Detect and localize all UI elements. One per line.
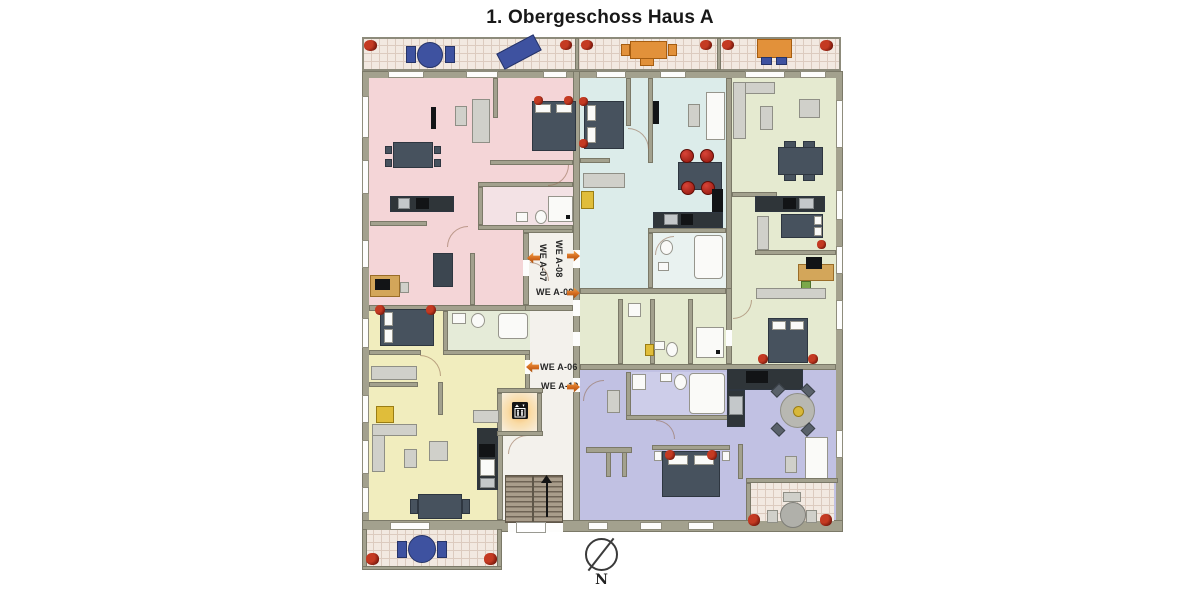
entrance-landing bbox=[516, 522, 546, 533]
stove bbox=[681, 214, 693, 225]
balcony-table bbox=[630, 41, 667, 59]
window bbox=[836, 430, 843, 458]
plant bbox=[579, 97, 588, 106]
wall bbox=[755, 250, 836, 255]
tv bbox=[431, 107, 436, 129]
dining-table bbox=[778, 147, 823, 175]
sink bbox=[516, 212, 528, 222]
balcony-wall bbox=[362, 529, 367, 570]
toilet bbox=[674, 374, 687, 390]
window bbox=[543, 71, 567, 78]
pillow bbox=[814, 216, 822, 225]
window bbox=[362, 440, 369, 474]
door-gap bbox=[573, 332, 580, 346]
staircase-direction-line bbox=[546, 481, 548, 517]
window bbox=[362, 160, 369, 194]
fridge bbox=[480, 459, 495, 476]
sink bbox=[452, 313, 466, 324]
window bbox=[836, 300, 843, 330]
crib bbox=[581, 191, 594, 209]
flower-pot bbox=[820, 514, 832, 526]
elevator-icon bbox=[512, 402, 528, 419]
wall bbox=[470, 253, 475, 305]
computer-monitor bbox=[375, 279, 390, 290]
wall bbox=[606, 452, 611, 477]
stove bbox=[783, 198, 796, 209]
label-we-a-06: WE A-06 bbox=[540, 362, 578, 372]
window bbox=[800, 71, 826, 78]
pillow bbox=[587, 105, 596, 121]
nightstand bbox=[722, 451, 730, 461]
stove bbox=[479, 444, 495, 457]
flower-pot bbox=[581, 40, 593, 50]
chair bbox=[680, 149, 694, 163]
pillow bbox=[556, 104, 572, 113]
sofa bbox=[805, 437, 828, 480]
window bbox=[362, 96, 369, 138]
washing-machine bbox=[632, 374, 646, 390]
toilet bbox=[471, 313, 485, 328]
wall bbox=[493, 78, 498, 118]
flower-pot bbox=[364, 40, 377, 51]
washing-machine bbox=[628, 303, 641, 317]
chair bbox=[434, 146, 441, 154]
window bbox=[388, 71, 424, 78]
pillow bbox=[587, 127, 596, 143]
chair bbox=[784, 141, 796, 148]
window bbox=[660, 71, 686, 78]
staircase-divider bbox=[532, 475, 534, 523]
label-we-a-07: WE A-07 bbox=[538, 244, 548, 282]
wall bbox=[626, 415, 731, 420]
wall bbox=[478, 225, 573, 230]
window bbox=[688, 522, 714, 530]
stove bbox=[416, 198, 429, 209]
balcony-wall bbox=[497, 529, 502, 570]
window bbox=[362, 487, 369, 513]
balcony-chair bbox=[445, 46, 455, 63]
plant bbox=[426, 305, 436, 315]
wall bbox=[626, 78, 631, 126]
label-we-a-08: WE A-08 bbox=[554, 240, 564, 278]
chair bbox=[700, 149, 714, 163]
chair bbox=[385, 159, 392, 167]
balcony-chair bbox=[640, 58, 654, 66]
tv bbox=[653, 101, 659, 124]
plant bbox=[534, 96, 543, 105]
plant bbox=[579, 139, 588, 148]
wall bbox=[497, 431, 543, 436]
balcony-chair bbox=[437, 541, 447, 558]
chair bbox=[385, 146, 392, 154]
door-gap bbox=[726, 330, 732, 346]
door-gap bbox=[573, 300, 580, 316]
kitchen-sink bbox=[398, 198, 410, 209]
sink bbox=[660, 373, 672, 382]
corner-sofa bbox=[733, 82, 746, 139]
pillow bbox=[384, 312, 393, 326]
balcony-round-table bbox=[780, 502, 806, 528]
page-title: 1. Obergeschoss Haus A bbox=[0, 7, 1200, 29]
sofa bbox=[472, 99, 490, 143]
wall bbox=[438, 382, 443, 415]
coffee-table bbox=[404, 449, 417, 468]
wall bbox=[738, 444, 743, 479]
bench bbox=[688, 104, 700, 127]
coffee-table bbox=[760, 106, 773, 130]
wall bbox=[369, 350, 421, 355]
bathtub bbox=[689, 373, 725, 414]
bathtub bbox=[498, 313, 528, 339]
floor-plan-page: 1. Obergeschoss Haus A bbox=[0, 0, 1200, 600]
kitchen-sink bbox=[799, 198, 814, 209]
balcony-chair bbox=[406, 46, 416, 63]
toilet bbox=[535, 210, 547, 224]
balcony-chair bbox=[621, 44, 630, 56]
table-centerpiece bbox=[793, 406, 804, 417]
pillow bbox=[535, 104, 551, 113]
toilet bbox=[660, 240, 673, 255]
wall bbox=[369, 382, 418, 387]
armchair bbox=[799, 99, 820, 118]
flower-pot bbox=[722, 40, 734, 50]
balcony-round-table bbox=[417, 42, 443, 68]
wall bbox=[622, 452, 627, 477]
toilet bbox=[666, 342, 678, 357]
chair bbox=[784, 174, 796, 181]
balcony-chair bbox=[761, 57, 772, 65]
kitchen-appliance bbox=[712, 189, 723, 212]
staircase bbox=[505, 475, 563, 523]
dining-table bbox=[418, 494, 462, 519]
balcony-wall bbox=[746, 478, 838, 483]
wall bbox=[580, 288, 726, 294]
flower-pot bbox=[560, 40, 572, 50]
window bbox=[362, 240, 369, 268]
flower-pot bbox=[366, 553, 379, 565]
chair bbox=[681, 181, 695, 195]
plant bbox=[817, 240, 826, 249]
stove bbox=[746, 371, 768, 383]
wardrobe bbox=[756, 288, 826, 299]
pillow bbox=[790, 321, 804, 330]
flower-pot bbox=[484, 553, 497, 565]
balcony-table bbox=[757, 39, 792, 58]
armchair bbox=[429, 441, 448, 461]
window bbox=[836, 246, 843, 274]
sink bbox=[658, 262, 669, 271]
towel-rack bbox=[645, 344, 654, 356]
plant bbox=[758, 354, 768, 364]
balcony-chair bbox=[783, 492, 801, 502]
window bbox=[362, 395, 369, 423]
plant bbox=[564, 96, 573, 105]
balcony-divider bbox=[575, 38, 579, 70]
balcony-chair bbox=[397, 541, 407, 558]
window bbox=[745, 71, 785, 78]
wall bbox=[726, 288, 732, 364]
chair bbox=[410, 499, 418, 514]
kitchen-sink bbox=[664, 214, 678, 225]
door-gap bbox=[523, 260, 529, 276]
dresser bbox=[785, 456, 797, 473]
wall bbox=[537, 393, 542, 433]
balcony-round-table bbox=[408, 535, 436, 563]
compass-north-label: N bbox=[585, 572, 618, 588]
wall bbox=[580, 158, 610, 163]
pillow bbox=[384, 329, 393, 343]
wall bbox=[652, 445, 730, 450]
plant bbox=[375, 305, 385, 315]
chair bbox=[434, 159, 441, 167]
window bbox=[588, 522, 608, 530]
balcony-divider bbox=[717, 38, 721, 70]
kitchen-sink bbox=[480, 478, 495, 488]
nightstand bbox=[654, 451, 662, 461]
sofa bbox=[583, 173, 625, 188]
plant bbox=[665, 450, 675, 460]
balcony-chair bbox=[668, 44, 677, 56]
window bbox=[836, 190, 843, 220]
wardrobe bbox=[757, 216, 769, 250]
sideboard bbox=[455, 106, 467, 126]
wall bbox=[443, 350, 530, 355]
plant bbox=[808, 354, 818, 364]
bathtub bbox=[694, 235, 723, 279]
wall bbox=[370, 221, 427, 226]
desk-chair bbox=[400, 282, 409, 293]
flower-pot bbox=[700, 40, 712, 50]
window bbox=[596, 71, 626, 78]
wall bbox=[726, 78, 732, 294]
wardrobe bbox=[433, 253, 453, 287]
window bbox=[640, 522, 662, 530]
flower-pot bbox=[820, 40, 833, 51]
pillow bbox=[772, 321, 786, 330]
wall bbox=[688, 299, 693, 364]
corner-sofa bbox=[372, 424, 417, 436]
sink bbox=[654, 341, 665, 350]
window bbox=[362, 318, 369, 348]
wall bbox=[618, 299, 623, 364]
balcony-chair bbox=[776, 57, 787, 65]
balcony-wall bbox=[362, 566, 502, 570]
crib bbox=[376, 406, 394, 423]
window bbox=[466, 71, 498, 78]
window bbox=[390, 522, 430, 530]
kitchen-cabinet bbox=[473, 410, 499, 423]
dining-table bbox=[393, 142, 433, 168]
window bbox=[836, 100, 843, 148]
computer-monitor bbox=[806, 257, 822, 269]
sofa bbox=[706, 92, 725, 140]
balcony-chair bbox=[806, 510, 817, 523]
kitchen-sink bbox=[729, 396, 743, 415]
wall bbox=[525, 305, 573, 311]
flower-pot bbox=[748, 514, 760, 526]
sofa bbox=[371, 366, 417, 380]
chair bbox=[803, 174, 815, 181]
chair bbox=[462, 499, 470, 514]
pillow bbox=[814, 227, 822, 236]
wardrobe bbox=[607, 390, 620, 413]
plant bbox=[707, 450, 717, 460]
balcony-chair bbox=[767, 510, 778, 523]
chair bbox=[803, 141, 815, 148]
shower-drain bbox=[566, 215, 570, 219]
shower-drain bbox=[716, 350, 720, 354]
